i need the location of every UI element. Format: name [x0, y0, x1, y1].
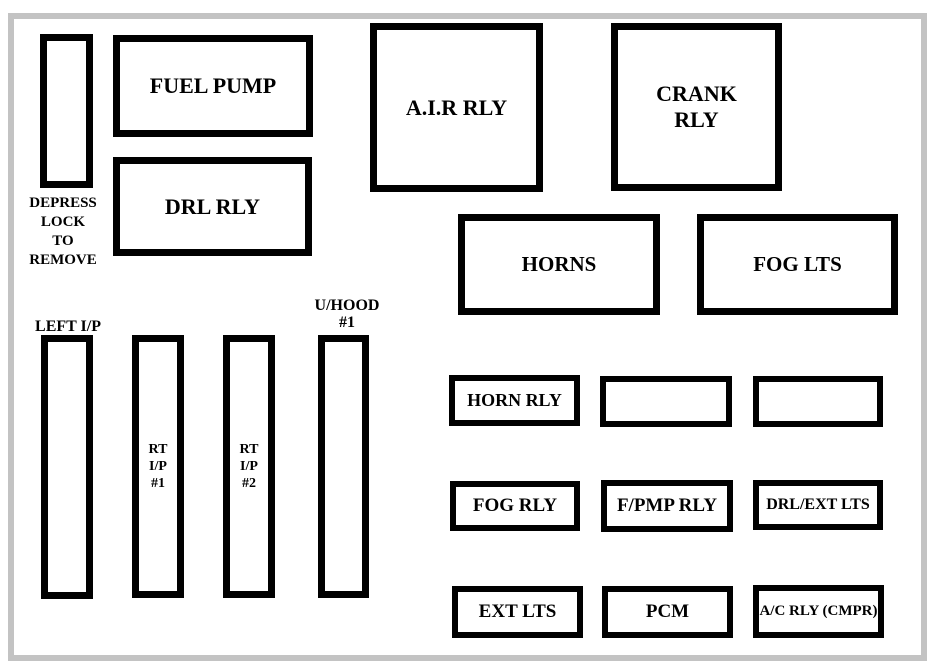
- fuse-slot-depress-lock: [40, 34, 93, 188]
- caption-line: REMOVE: [18, 251, 108, 270]
- depress-lock-caption: DEPRESS LOCK TO REMOVE: [18, 194, 108, 270]
- fuse-column-label: RT I/P #1: [139, 441, 177, 492]
- fuse-column-label: RT I/P #2: [230, 441, 268, 492]
- fuse-box-fog-rly: FOG RLY: [450, 481, 580, 531]
- fuse-box-blank-2: [753, 376, 883, 427]
- fuse-box-label: FUEL PUMP: [150, 73, 277, 99]
- fuse-box-blank-1: [600, 376, 732, 427]
- caption-line: LOCK: [18, 213, 108, 232]
- fuse-column-rt-ip-1: RT I/P #1: [132, 335, 184, 598]
- fuse-box-horn-rly: HORN RLY: [449, 375, 580, 426]
- caption-line: DEPRESS: [18, 194, 108, 213]
- caption-line: #1: [310, 314, 384, 331]
- fuse-box-label: DRL/EXT LTS: [766, 496, 870, 514]
- fuse-box-fuel-pump: FUEL PUMP: [113, 35, 313, 137]
- fuse-box-crank-rly: CRANK RLY: [611, 23, 782, 191]
- fuse-box-diagram: DEPRESS LOCK TO REMOVE FUEL PUMP DRL RLY…: [0, 0, 932, 664]
- fuse-box-label: EXT LTS: [479, 601, 557, 623]
- u-hood-1-caption: U/HOOD #1: [310, 297, 384, 331]
- fuse-box-label: PCM: [646, 601, 689, 623]
- fuse-box-drl-ext-lts: DRL/EXT LTS: [753, 480, 883, 530]
- fuse-box-label: A.I.R RLY: [406, 95, 507, 121]
- fuse-box-air-rly: A.I.R RLY: [370, 23, 543, 192]
- caption-line: U/HOOD: [310, 297, 384, 314]
- fuse-box-label: DRL RLY: [165, 194, 260, 220]
- fuse-box-ac-rly-cmpr: A/C RLY (CMPR): [753, 585, 884, 638]
- fuse-box-fog-lts: FOG LTS: [697, 214, 898, 315]
- fuse-column-u-hood-1: [318, 335, 369, 598]
- fuse-box-horns: HORNS: [458, 214, 660, 315]
- fuse-box-label: A/C RLY (CMPR): [759, 603, 877, 620]
- fuse-box-label: FOG RLY: [473, 495, 557, 517]
- fuse-box-fpmp-rly: F/PMP RLY: [601, 480, 733, 532]
- fuse-box-label: HORN RLY: [467, 390, 562, 411]
- fuse-box-label: F/PMP RLY: [617, 495, 717, 517]
- fuse-box-pcm: PCM: [602, 586, 733, 638]
- fuse-box-drl-rly: DRL RLY: [113, 157, 312, 256]
- fuse-box-label: HORNS: [522, 252, 597, 277]
- fuse-box-ext-lts: EXT LTS: [452, 586, 583, 638]
- fuse-column-left-ip: [41, 335, 93, 599]
- fuse-box-label: CRANK RLY: [656, 81, 737, 133]
- caption-line: TO: [18, 232, 108, 251]
- left-ip-caption: LEFT I/P: [33, 317, 103, 337]
- fuse-box-label: FOG LTS: [753, 252, 842, 277]
- fuse-column-rt-ip-2: RT I/P #2: [223, 335, 275, 598]
